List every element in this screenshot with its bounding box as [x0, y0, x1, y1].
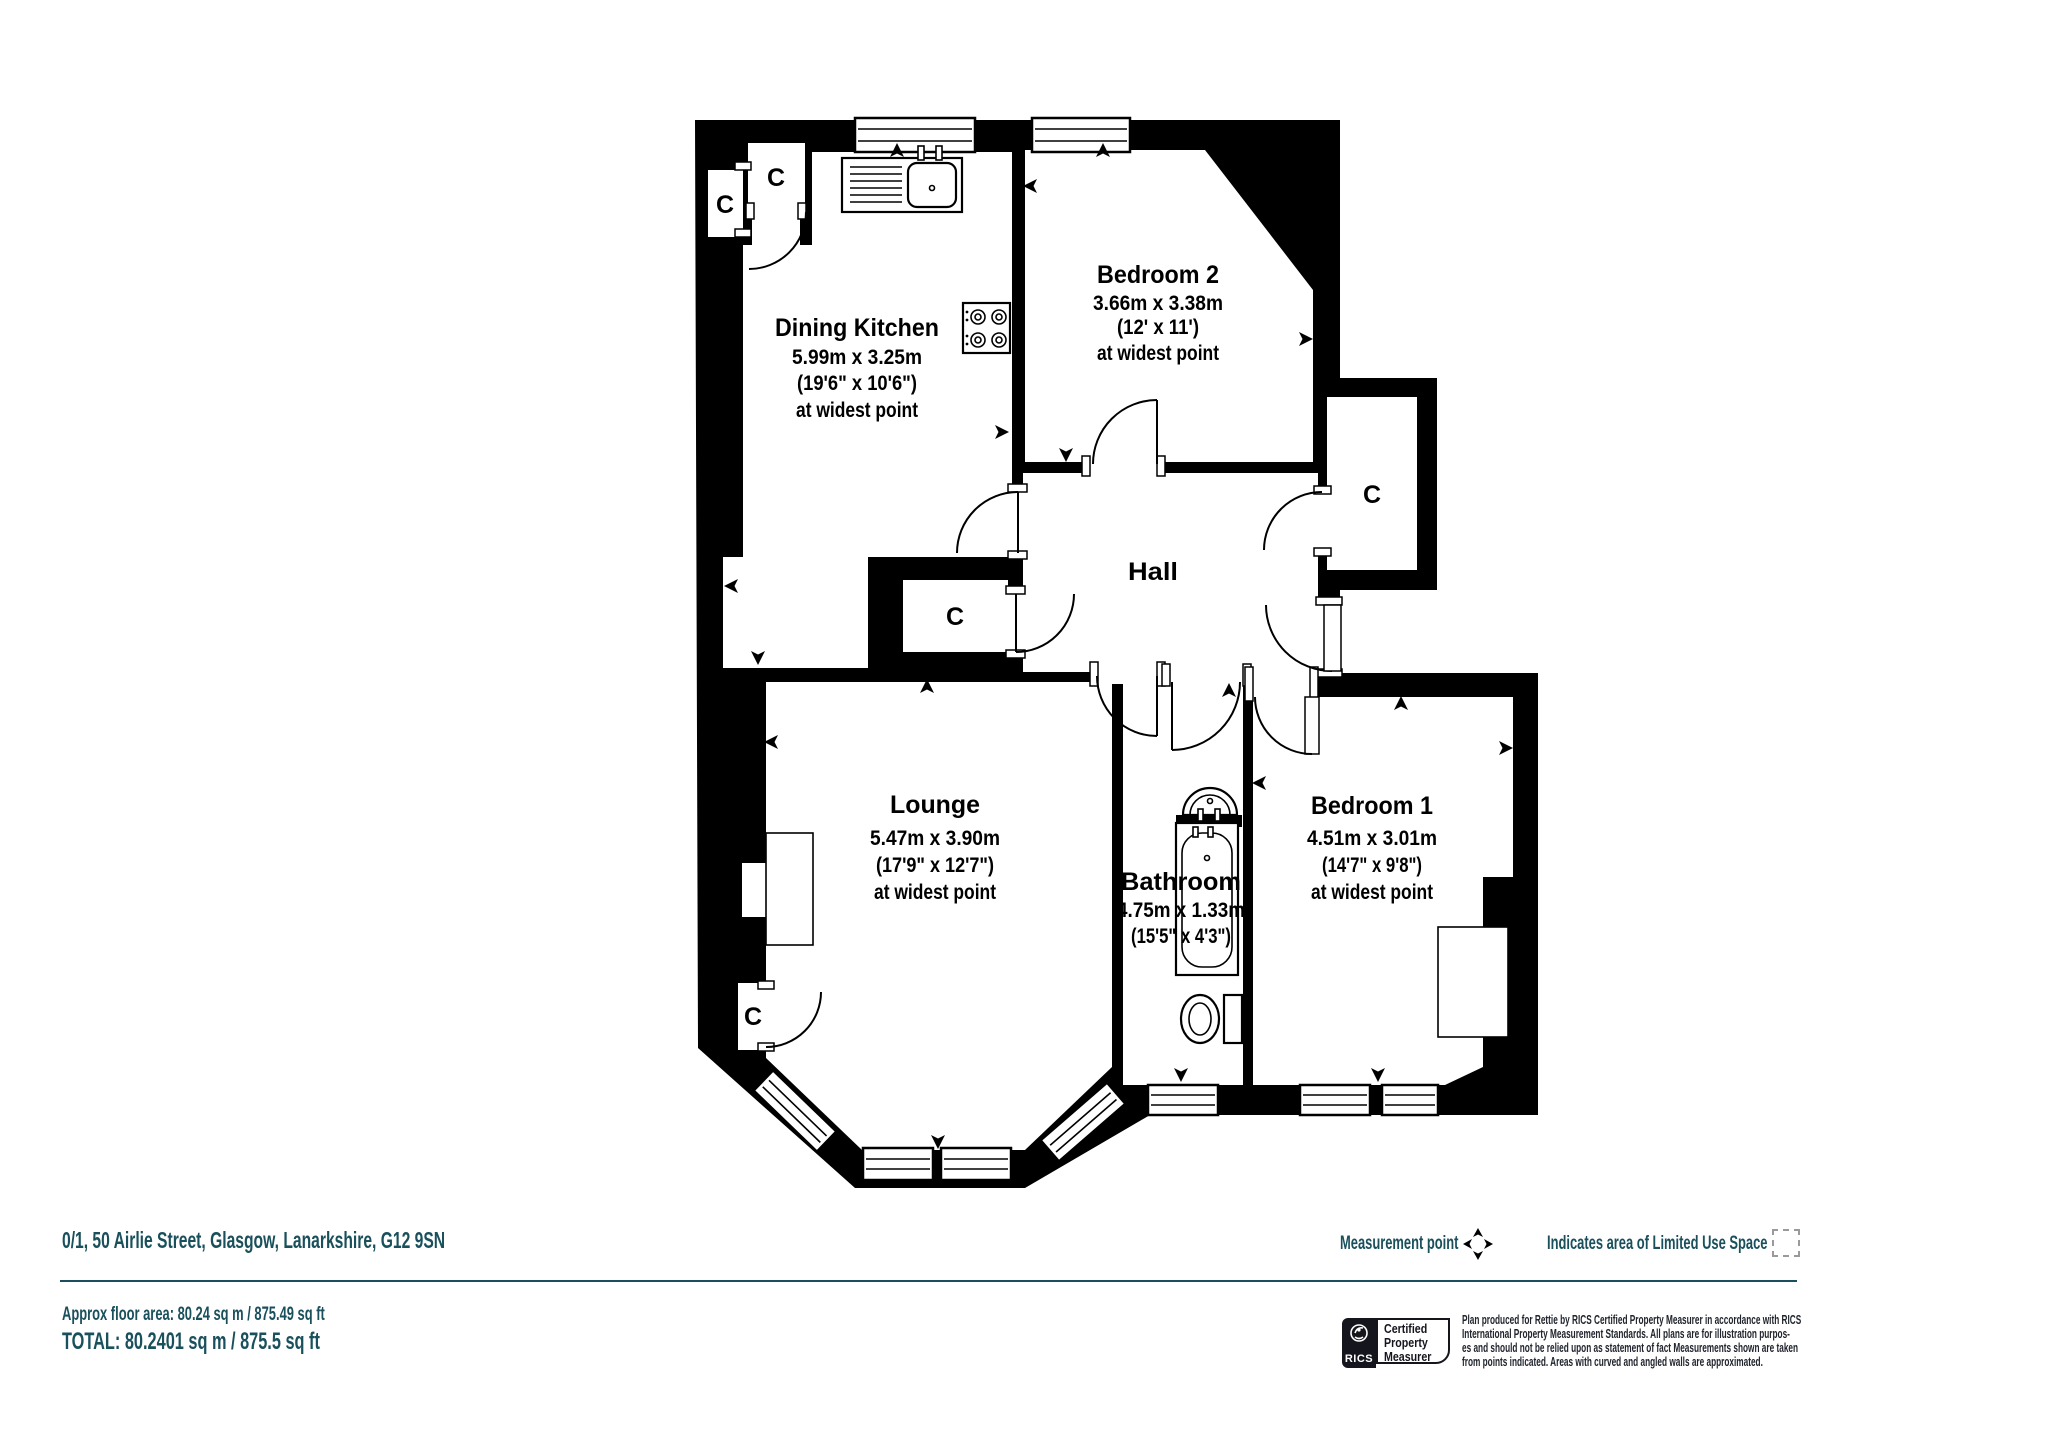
bedroom1-note: at widest point	[1311, 881, 1433, 904]
lounge-dims-metric: 5.47m x 3.90m	[870, 827, 1000, 850]
rics-logo: RICS Certified Property Measurer	[1342, 1318, 1452, 1368]
bathroom-toilet	[1181, 995, 1242, 1043]
bedroom2-label: Bedroom 2	[1097, 261, 1219, 289]
bathroom-dims-imperial: (15'5" x 4'3")	[1131, 925, 1231, 948]
kitchen-dims-imperial: (19'6" x 10'6")	[797, 372, 917, 395]
bedroom1-window-left	[1300, 1085, 1370, 1115]
rics-cert-line: Certified	[1384, 1322, 1436, 1336]
kitchen-label: Dining Kitchen	[775, 314, 939, 342]
legend-limited-use-label: Indicates area of Limited Use Space	[1547, 1233, 1767, 1255]
closet-upper-label: C	[767, 164, 785, 192]
footer-divider	[60, 1280, 1797, 1282]
limited-use-space-icon	[1772, 1229, 1800, 1257]
bedroom1-dims-metric: 4.51m x 3.01m	[1307, 827, 1437, 850]
disclaimer: Plan produced for Rettie by RICS Certifi…	[1462, 1314, 1982, 1370]
legend-measurement-point-label: Measurement point	[1340, 1233, 1458, 1255]
bedroom1-alcove	[1438, 927, 1508, 1037]
hall-label: Hall	[1128, 558, 1178, 586]
measurement-point-icon	[1462, 1227, 1494, 1261]
closet-lounge-label: C	[744, 1003, 762, 1031]
rics-lion-icon	[1342, 1318, 1376, 1352]
kitchen-hob	[963, 303, 1010, 353]
kitchen-dims-metric: 5.99m x 3.25m	[792, 346, 922, 369]
rics-cert-box: Certified Property Measurer	[1376, 1318, 1450, 1364]
lounge-dims-imperial: (17'9" x 12'7")	[876, 854, 994, 877]
approx-floor-area: Approx floor area: 80.24 sq m / 875.49 s…	[62, 1304, 325, 1326]
bedroom2-dims-imperial: (12' x 11')	[1117, 316, 1199, 339]
lounge-floor	[766, 682, 1112, 1150]
bedroom2-dims-metric: 3.66m x 3.38m	[1093, 292, 1223, 315]
closet-left-label: C	[716, 191, 734, 219]
rics-brand-text: RICS	[1342, 1353, 1376, 1365]
bedroom2-window	[1032, 118, 1130, 152]
bedroom1-label: Bedroom 1	[1311, 792, 1433, 820]
lounge-note: at widest point	[874, 881, 996, 904]
property-address: 0/1, 50 Airlie Street, Glasgow, Lanarksh…	[62, 1227, 445, 1254]
lounge-label: Lounge	[890, 791, 980, 819]
disclaimer-line: from points indicated. Areas with curved…	[1462, 1356, 1805, 1370]
bay-window-center-left	[863, 1148, 933, 1180]
closet-hall-label: C	[1363, 481, 1381, 509]
disclaimer-line: es and should not be relied upon as stat…	[1462, 1342, 1805, 1356]
bedroom1-dims-imperial: (14'7" x 9'8")	[1322, 854, 1422, 877]
lounge-chimney-breast	[766, 833, 813, 945]
kitchen-note: at widest point	[796, 399, 918, 422]
rics-cert-line: Measurer	[1384, 1350, 1436, 1364]
bathroom-dims-metric: 4.75m x 1.33m	[1117, 899, 1245, 922]
rics-emblem: RICS	[1342, 1318, 1376, 1368]
bedroom2-note: at widest point	[1097, 342, 1219, 365]
floorplan-page: Dining Kitchen 5.99m x 3.25m (19'6" x 10…	[0, 0, 2048, 1448]
bedroom1-window-right	[1382, 1085, 1438, 1115]
kitchen-window	[855, 118, 975, 152]
rics-cert-line: Property	[1384, 1336, 1436, 1350]
closet-middle-label: C	[946, 603, 964, 631]
bathroom-window	[1148, 1085, 1218, 1115]
disclaimer-line: Plan produced for Rettie by RICS Certifi…	[1462, 1314, 1805, 1328]
disclaimer-line: International Property Measurement Stand…	[1462, 1328, 1805, 1342]
bathroom-label: Bathroom	[1121, 868, 1241, 896]
bay-window-center-right	[941, 1148, 1011, 1180]
total-floor-area: TOTAL: 80.2401 sq m / 875.5 sq ft	[62, 1328, 320, 1356]
